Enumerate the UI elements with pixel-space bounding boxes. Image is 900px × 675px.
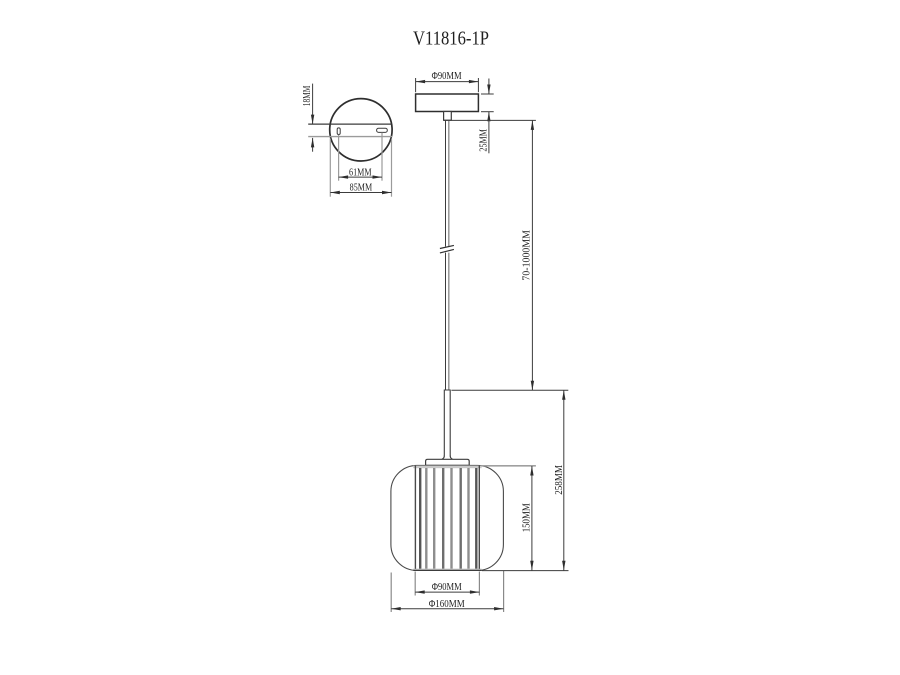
svg-text:18MM: 18MM (301, 86, 313, 107)
svg-text:V11816-1P: V11816-1P (413, 28, 489, 50)
svg-text:61MM: 61MM (349, 166, 372, 178)
svg-text:150MM: 150MM (521, 503, 533, 532)
svg-text:Φ90MM: Φ90MM (432, 70, 462, 82)
svg-text:Φ160MM: Φ160MM (429, 598, 465, 610)
svg-text:25MM: 25MM (477, 129, 489, 152)
svg-text:Φ90MM: Φ90MM (432, 581, 462, 593)
svg-text:258MM: 258MM (553, 465, 565, 495)
svg-text:70-1000MM: 70-1000MM (521, 230, 533, 281)
svg-text:85MM: 85MM (350, 181, 373, 193)
